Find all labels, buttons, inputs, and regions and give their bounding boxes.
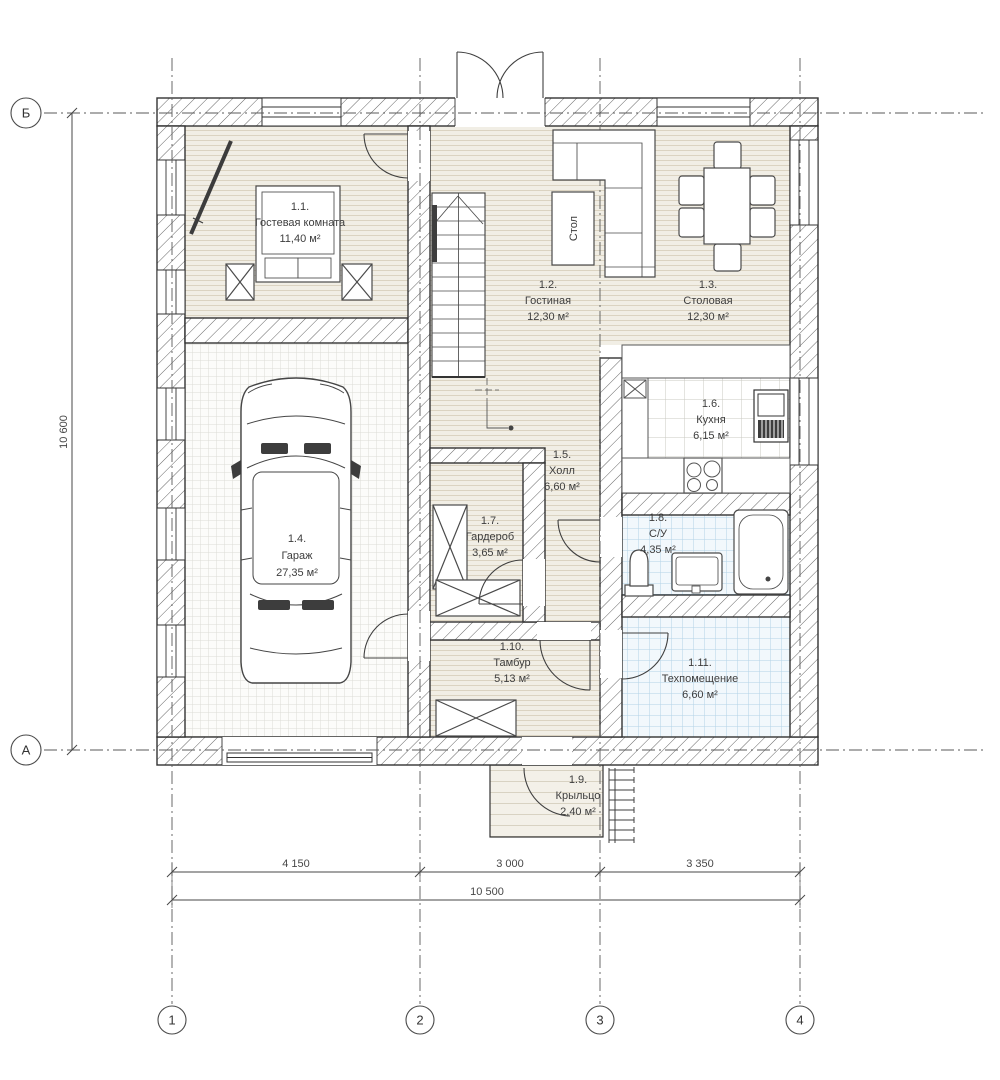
window-garage-3 xyxy=(157,625,185,677)
wall-wardrobe-top xyxy=(430,448,545,463)
svg-text:Холл: Холл xyxy=(549,465,575,477)
dim-total-width: 10 500 xyxy=(470,886,504,898)
svg-text:Гостевая комната: Гостевая комната xyxy=(255,217,346,229)
nightstand-right xyxy=(342,264,372,300)
car-top-view xyxy=(231,378,361,683)
porch-steps xyxy=(609,767,634,843)
svg-text:Тамбур: Тамбур xyxy=(493,657,530,669)
axis-row-b: Б xyxy=(22,106,31,121)
window-kitchen-right xyxy=(790,378,818,465)
window-dining-right xyxy=(790,140,818,225)
svg-text:1.8.: 1.8. xyxy=(649,512,667,524)
floor-plan-canvas: Стол xyxy=(0,0,1000,1080)
floor-plan-page: Стол xyxy=(0,0,1000,1080)
window-garage-1 xyxy=(157,388,185,440)
svg-text:С/У: С/У xyxy=(649,528,668,540)
kitchen-sink-mark xyxy=(624,380,646,398)
dim-total-height: 10 600 xyxy=(58,415,70,449)
svg-text:1.11.: 1.11. xyxy=(688,657,712,669)
dim-segment-3: 3 350 xyxy=(686,858,714,870)
coffee-table: Стол xyxy=(552,192,594,265)
svg-text:2,40 м²: 2,40 м² xyxy=(560,806,596,818)
svg-text:1.10.: 1.10. xyxy=(500,641,524,653)
svg-text:1.3.: 1.3. xyxy=(699,279,717,291)
axis-row-a: А xyxy=(22,743,31,758)
kitchen-sink-unit xyxy=(754,390,788,442)
svg-text:Гардероб: Гардероб xyxy=(466,531,514,543)
bathtub xyxy=(734,510,788,594)
radiator-stairs xyxy=(432,205,437,262)
chair xyxy=(714,244,741,271)
axis-col-4: 4 xyxy=(796,1013,803,1028)
svg-text:1.9.: 1.9. xyxy=(569,774,587,786)
garage-gate xyxy=(222,737,377,765)
svg-text:27,35 м²: 27,35 м² xyxy=(276,567,318,579)
svg-text:12,30 м²: 12,30 м² xyxy=(527,311,569,323)
svg-text:6,15 м²: 6,15 м² xyxy=(693,430,729,442)
window-left-guest-2 xyxy=(157,270,185,314)
svg-text:1.2.: 1.2. xyxy=(539,279,557,291)
svg-text:Гараж: Гараж xyxy=(281,550,313,562)
svg-text:11,40 м²: 11,40 м² xyxy=(280,233,321,245)
wardrobe-cabinet-bottom xyxy=(436,580,520,616)
svg-text:12,30 м²: 12,30 м² xyxy=(687,311,729,323)
svg-text:1.7.: 1.7. xyxy=(481,515,499,527)
svg-text:1.5.: 1.5. xyxy=(553,449,571,461)
chair xyxy=(679,176,704,205)
washbasin xyxy=(672,553,722,593)
svg-text:Гостиная: Гостиная xyxy=(525,295,571,307)
dim-segment-2: 3 000 xyxy=(496,858,524,870)
stove xyxy=(684,458,722,493)
svg-text:Кухня: Кухня xyxy=(696,414,725,426)
svg-text:6,60 м²: 6,60 м² xyxy=(544,481,580,493)
chair xyxy=(714,142,741,169)
axis-col-3: 3 xyxy=(596,1013,603,1028)
nightstand-left xyxy=(226,264,254,300)
coffee-table-label: Стол xyxy=(568,216,580,241)
double-door-top xyxy=(457,52,543,98)
svg-text:4,35 м²: 4,35 м² xyxy=(640,544,676,556)
wall-guest-garage xyxy=(185,318,408,343)
chair xyxy=(679,208,704,237)
wardrobe-cabinet-left xyxy=(433,505,467,589)
axis-col-2: 2 xyxy=(416,1013,423,1028)
svg-text:Техпомещение: Техпомещение xyxy=(662,673,739,685)
svg-text:5,13 м²: 5,13 м² xyxy=(494,673,530,685)
window-top-guest xyxy=(262,98,341,126)
dining-table xyxy=(704,168,750,244)
svg-text:1.4.: 1.4. xyxy=(288,533,306,545)
svg-text:3,65 м²: 3,65 м² xyxy=(472,547,508,559)
svg-text:6,60 м²: 6,60 м² xyxy=(682,689,718,701)
svg-text:Крыльцо: Крыльцо xyxy=(556,790,601,802)
svg-text:1.6.: 1.6. xyxy=(702,398,720,410)
dim-segment-1: 4 150 xyxy=(282,858,310,870)
window-left-guest-1 xyxy=(157,160,185,215)
svg-text:1.1.: 1.1. xyxy=(291,201,309,213)
svg-text:Столовая: Столовая xyxy=(683,295,732,307)
tambour-cabinet xyxy=(436,700,516,736)
axis-col-1: 1 xyxy=(168,1013,175,1028)
wall-bath-tech xyxy=(622,595,790,617)
window-top-dining xyxy=(657,98,750,126)
chair xyxy=(750,208,775,237)
chair xyxy=(750,176,775,205)
window-garage-2 xyxy=(157,508,185,560)
